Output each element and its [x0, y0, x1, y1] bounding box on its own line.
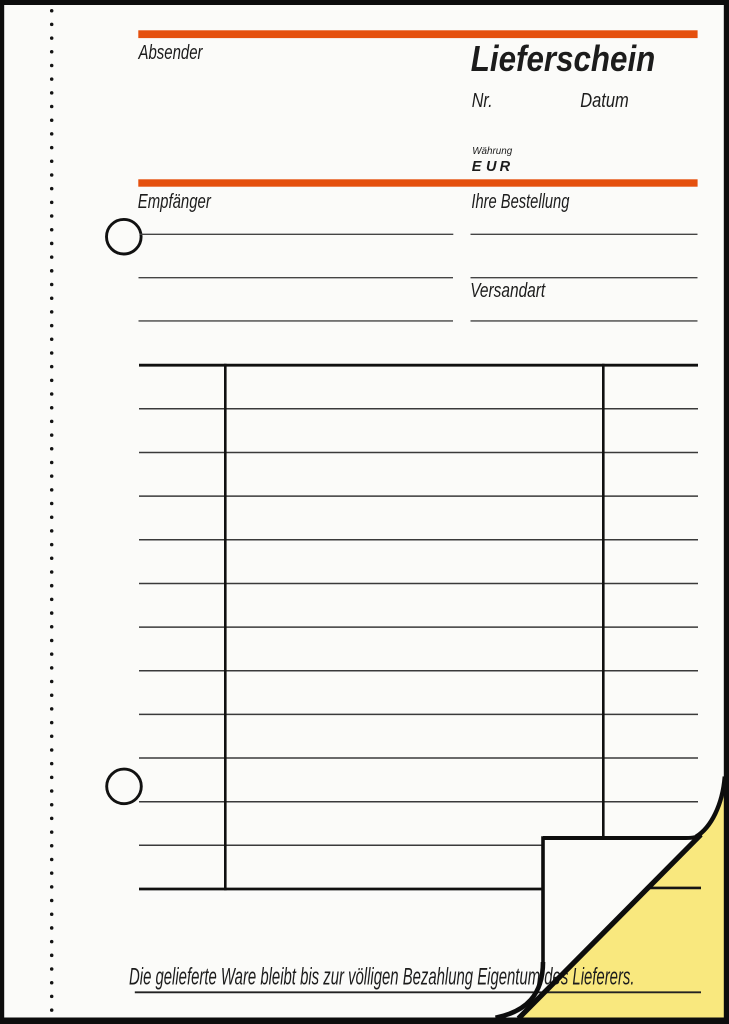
- svg-text:Ihre Bestellung: Ihre Bestellung: [471, 191, 569, 213]
- svg-text:Datum: Datum: [580, 90, 629, 112]
- svg-text:EUR: EUR: [472, 159, 511, 175]
- svg-text:Nr.: Nr.: [472, 90, 493, 112]
- svg-text:Empfänger: Empfänger: [138, 191, 212, 213]
- svg-text:Lieferschein: Lieferschein: [471, 38, 656, 79]
- svg-text:Währung: Währung: [472, 146, 512, 157]
- svg-text:Absender: Absender: [138, 42, 204, 64]
- svg-text:Versandart: Versandart: [470, 280, 546, 302]
